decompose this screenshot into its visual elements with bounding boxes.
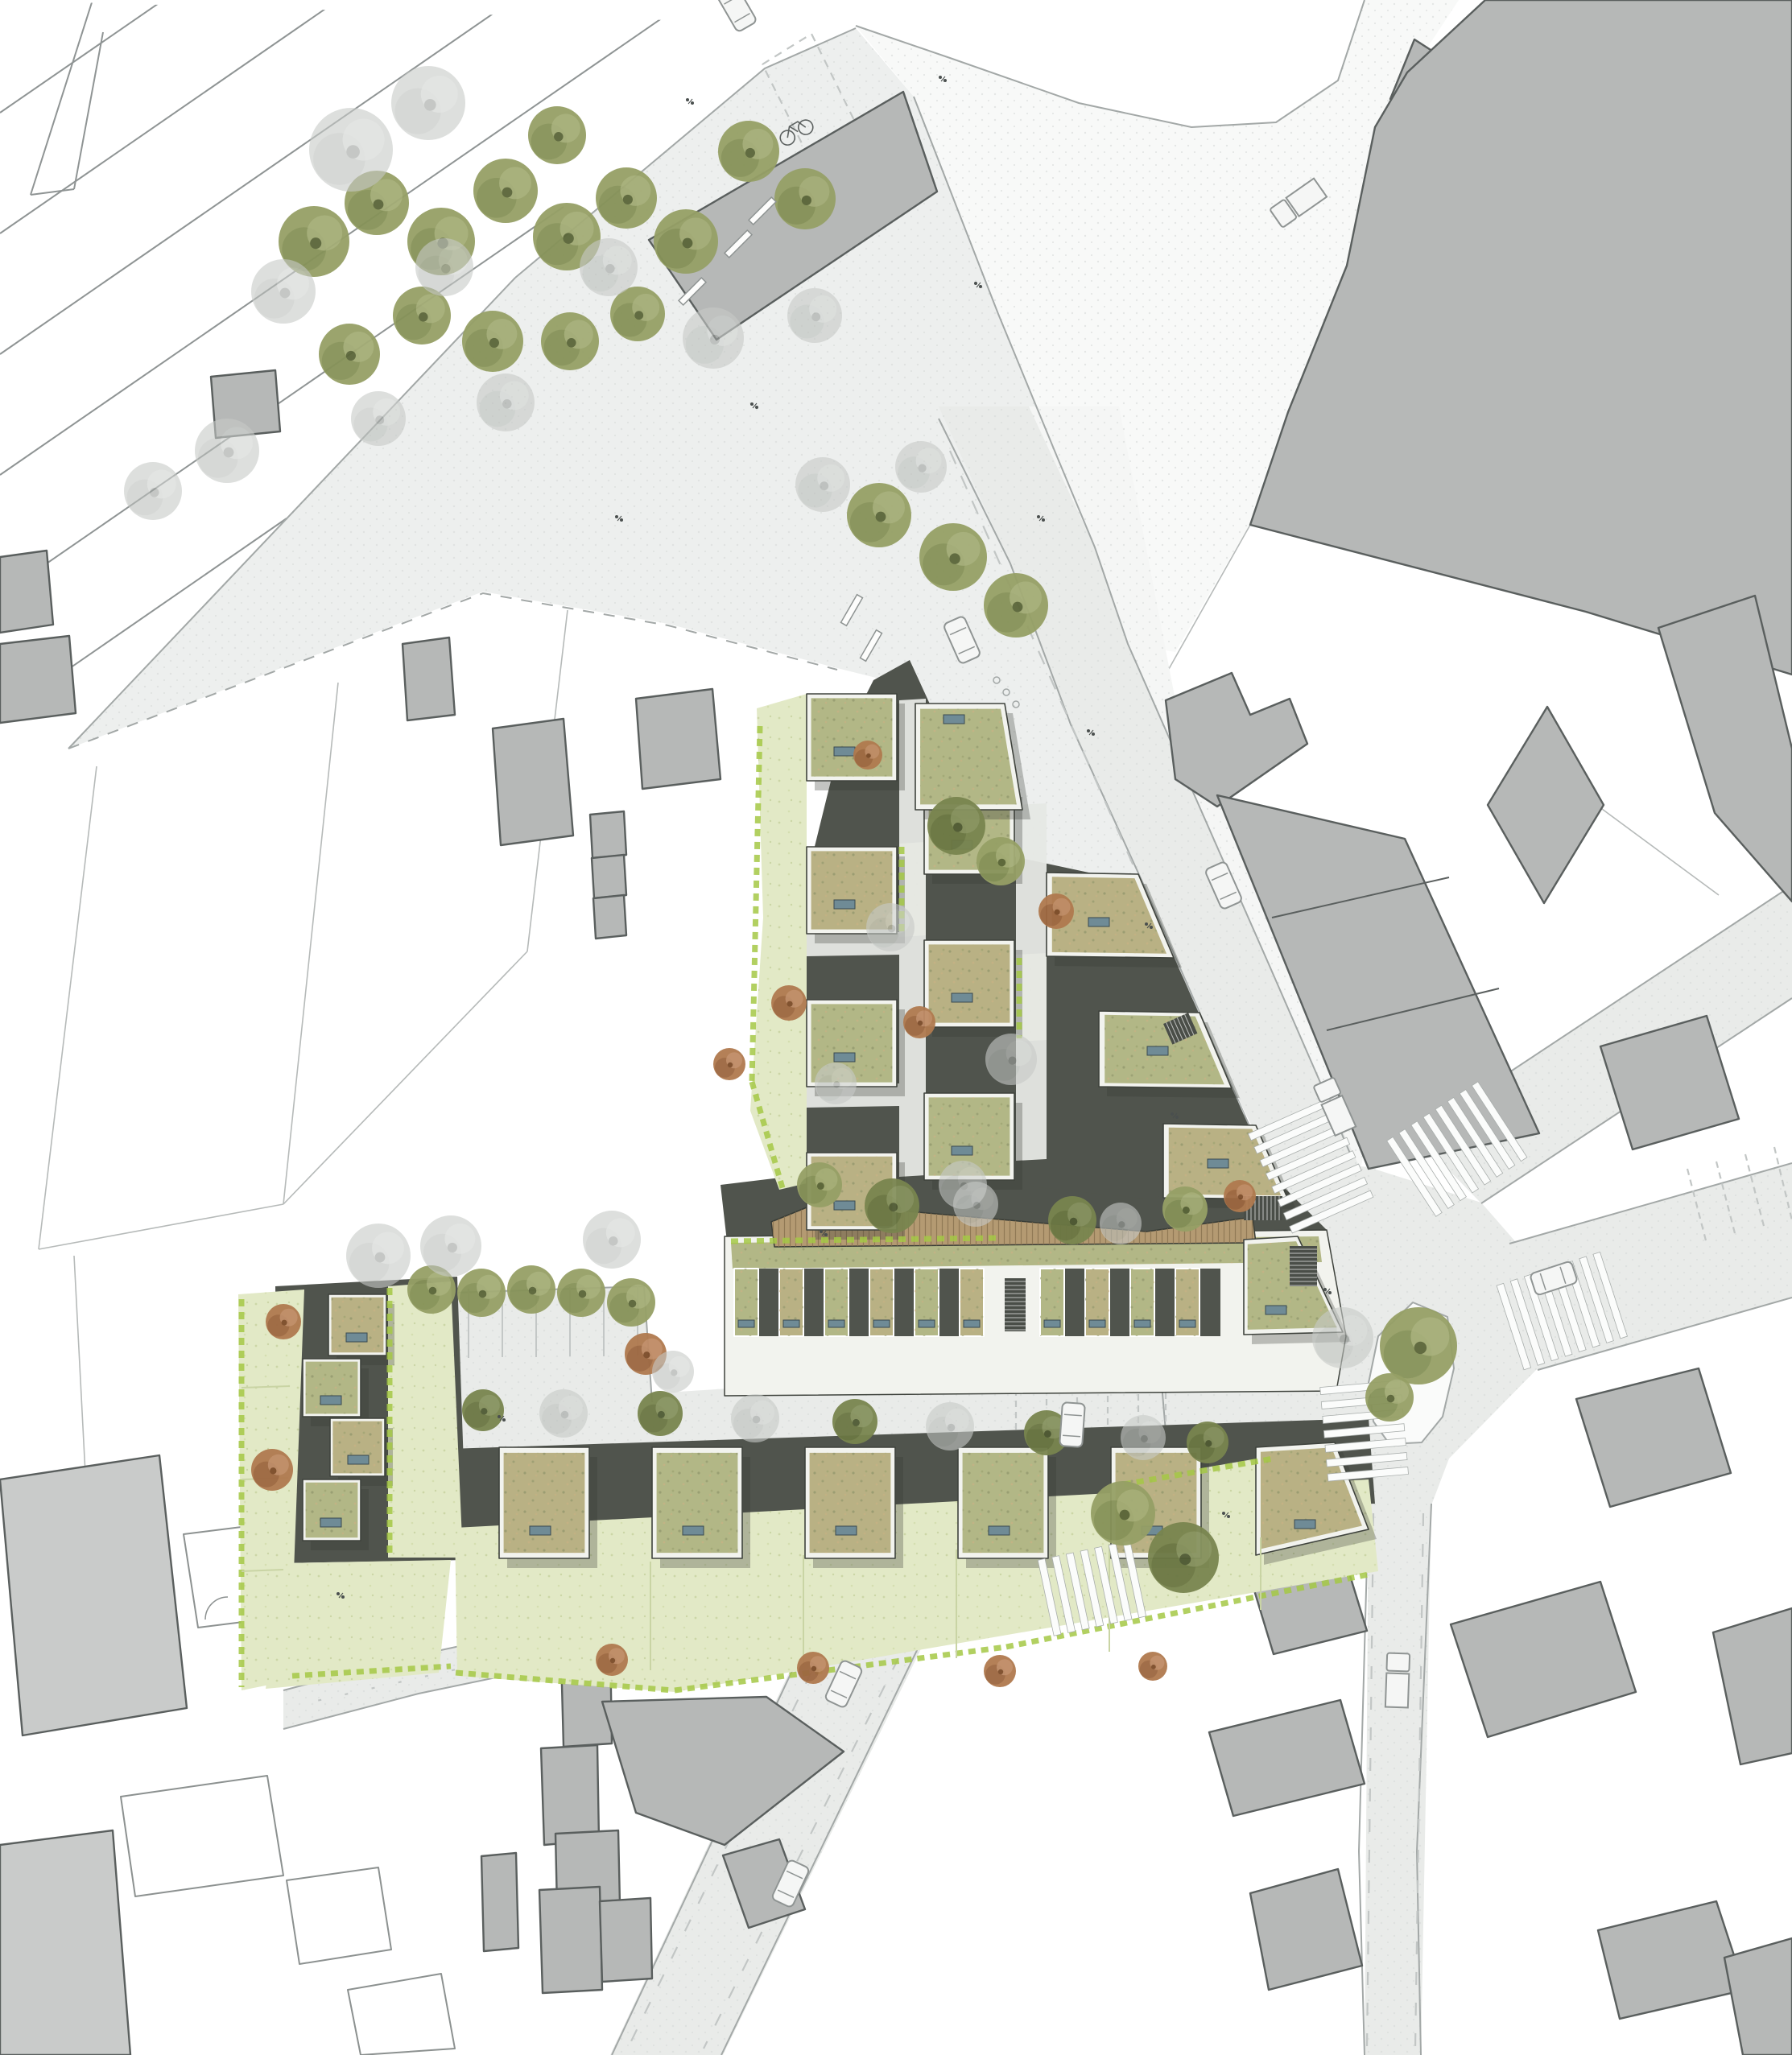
tree-o bbox=[557, 1269, 605, 1317]
tree-g bbox=[895, 441, 947, 493]
tree-a bbox=[251, 1449, 293, 1491]
tree-a bbox=[713, 1048, 745, 1080]
tree-d bbox=[832, 1399, 877, 1444]
skylight bbox=[1134, 1320, 1150, 1327]
tree-g bbox=[346, 1224, 411, 1288]
band-slot bbox=[758, 1269, 779, 1336]
skylight bbox=[1044, 1320, 1060, 1327]
tree-o bbox=[977, 837, 1025, 885]
tree-g bbox=[953, 1182, 998, 1227]
center-g bbox=[539, 1887, 602, 1993]
tree-a bbox=[771, 985, 807, 1021]
farm-a bbox=[493, 719, 573, 845]
center-e bbox=[541, 1745, 599, 1845]
car-icon bbox=[1059, 1402, 1085, 1447]
diamond-house bbox=[1488, 707, 1604, 903]
tree-o bbox=[473, 159, 538, 223]
slab-corner bbox=[0, 1830, 130, 2055]
tree-o bbox=[1091, 1481, 1155, 1545]
south-f bbox=[1724, 1938, 1792, 2055]
south-g bbox=[1209, 1700, 1365, 1816]
skylight bbox=[943, 715, 964, 724]
skylight bbox=[320, 1518, 341, 1527]
skylight bbox=[346, 1333, 367, 1342]
band-slot bbox=[1154, 1269, 1175, 1336]
skylight bbox=[989, 1526, 1010, 1535]
tree-g bbox=[795, 457, 850, 512]
band-slot bbox=[849, 1269, 869, 1336]
band-slot bbox=[803, 1269, 824, 1336]
tree-o bbox=[541, 312, 599, 370]
skylight bbox=[1208, 1159, 1228, 1168]
skylight bbox=[320, 1396, 341, 1405]
south-h bbox=[1250, 1869, 1362, 1990]
site-plan-svg bbox=[0, 0, 1792, 2055]
tree-g bbox=[985, 1034, 1037, 1085]
tree-g bbox=[351, 391, 406, 446]
tree-a bbox=[853, 741, 882, 770]
skylight bbox=[952, 1146, 972, 1155]
tree-g bbox=[866, 903, 915, 951]
skylight bbox=[834, 1201, 855, 1210]
tree-g bbox=[1121, 1415, 1166, 1460]
tree-g bbox=[926, 1402, 974, 1450]
tree-o bbox=[654, 209, 718, 274]
barn-4 bbox=[348, 1974, 455, 2055]
tree-g bbox=[652, 1351, 694, 1393]
tree-o bbox=[607, 1278, 655, 1327]
skylight bbox=[1179, 1320, 1195, 1327]
band-slot bbox=[1109, 1269, 1130, 1336]
tree-g bbox=[124, 462, 182, 520]
tree-a bbox=[1138, 1652, 1167, 1681]
person-mark bbox=[686, 98, 694, 105]
center-h bbox=[600, 1898, 652, 1982]
tree-d bbox=[1187, 1422, 1228, 1463]
skylight bbox=[952, 993, 972, 1002]
farm-c bbox=[403, 638, 455, 720]
tree-o bbox=[984, 573, 1048, 638]
tree-g bbox=[309, 108, 393, 192]
tree-o bbox=[610, 287, 665, 341]
south-d bbox=[1598, 1901, 1745, 2019]
skylight bbox=[1294, 1520, 1315, 1529]
south-c bbox=[1713, 1608, 1792, 1764]
tree-g bbox=[1100, 1203, 1142, 1244]
skylight bbox=[1089, 1320, 1105, 1327]
tree-o bbox=[847, 483, 911, 547]
tree-o bbox=[507, 1265, 555, 1314]
skylight bbox=[964, 1320, 980, 1327]
tree-o bbox=[718, 121, 779, 182]
tree-g bbox=[787, 288, 842, 343]
tree-a bbox=[1038, 893, 1074, 929]
skylight bbox=[834, 1053, 855, 1062]
skylight bbox=[1147, 1046, 1168, 1055]
slab-left bbox=[0, 1455, 187, 1735]
tree-o bbox=[774, 168, 836, 229]
stairs bbox=[1290, 1246, 1317, 1286]
tree-g bbox=[477, 373, 535, 431]
skylight bbox=[1088, 918, 1109, 926]
stepped-house bbox=[1166, 673, 1307, 807]
tree-o bbox=[596, 167, 657, 229]
tree-d bbox=[927, 797, 985, 855]
tree-o bbox=[528, 106, 586, 164]
band-slot bbox=[1199, 1269, 1220, 1336]
tree-o bbox=[797, 1162, 842, 1207]
stairs bbox=[1005, 1278, 1026, 1331]
tree-g bbox=[1312, 1307, 1373, 1368]
tree-g bbox=[539, 1389, 588, 1438]
skylight bbox=[834, 747, 855, 756]
tree-d bbox=[1148, 1522, 1219, 1593]
skylight bbox=[836, 1526, 857, 1535]
tree-o bbox=[1365, 1373, 1414, 1422]
tree-d bbox=[638, 1391, 683, 1436]
tree-a bbox=[797, 1652, 829, 1684]
tree-g bbox=[583, 1211, 641, 1269]
farm-b bbox=[636, 689, 721, 789]
skylight bbox=[783, 1320, 799, 1327]
tree-o bbox=[457, 1269, 506, 1317]
skylight bbox=[873, 1320, 890, 1327]
skylight bbox=[828, 1320, 844, 1327]
skylight bbox=[348, 1455, 369, 1464]
skylight bbox=[834, 900, 855, 909]
west-a bbox=[481, 1853, 518, 1951]
plan-graphics bbox=[0, 0, 1792, 2055]
tree-g bbox=[195, 419, 259, 483]
tree-g bbox=[251, 259, 316, 324]
skylight bbox=[919, 1320, 935, 1327]
farm-f bbox=[0, 636, 76, 723]
band-slot bbox=[1064, 1269, 1085, 1336]
tree-o bbox=[462, 311, 523, 372]
tree-g bbox=[391, 66, 465, 140]
shed-col-1 bbox=[590, 811, 626, 858]
skylight bbox=[1266, 1306, 1286, 1314]
truck-icon bbox=[1385, 1653, 1410, 1708]
tree-d bbox=[865, 1178, 919, 1233]
car-icon bbox=[716, 0, 757, 32]
tree-o bbox=[1380, 1307, 1457, 1384]
farm-e bbox=[0, 551, 53, 633]
tree-a bbox=[903, 1006, 935, 1038]
site-plan-canvas bbox=[0, 0, 1792, 2055]
band-slot bbox=[894, 1269, 915, 1336]
tree-g bbox=[815, 1063, 857, 1104]
skylight bbox=[738, 1320, 754, 1327]
tree-a bbox=[984, 1655, 1016, 1687]
tree-g bbox=[683, 307, 744, 369]
shed-col-2 bbox=[592, 855, 626, 898]
tree-d bbox=[462, 1389, 504, 1431]
barn-3 bbox=[287, 1867, 391, 1964]
tree-o bbox=[319, 324, 380, 385]
tree-a bbox=[596, 1644, 628, 1676]
tree-o bbox=[919, 523, 987, 591]
south-b bbox=[1451, 1582, 1636, 1737]
skylight bbox=[683, 1526, 704, 1535]
band-slot bbox=[939, 1269, 960, 1336]
barn-2 bbox=[121, 1776, 283, 1896]
tree-a bbox=[1224, 1180, 1256, 1212]
tree-g bbox=[415, 238, 473, 296]
skylight bbox=[530, 1526, 551, 1535]
corner-house bbox=[1576, 1368, 1731, 1507]
tree-d bbox=[1048, 1196, 1096, 1244]
tree-g bbox=[731, 1394, 779, 1442]
tree-g bbox=[580, 238, 638, 296]
shed-col-3 bbox=[593, 895, 626, 939]
tree-a bbox=[266, 1304, 301, 1339]
tree-o bbox=[1162, 1186, 1208, 1232]
tree-g bbox=[420, 1215, 481, 1277]
